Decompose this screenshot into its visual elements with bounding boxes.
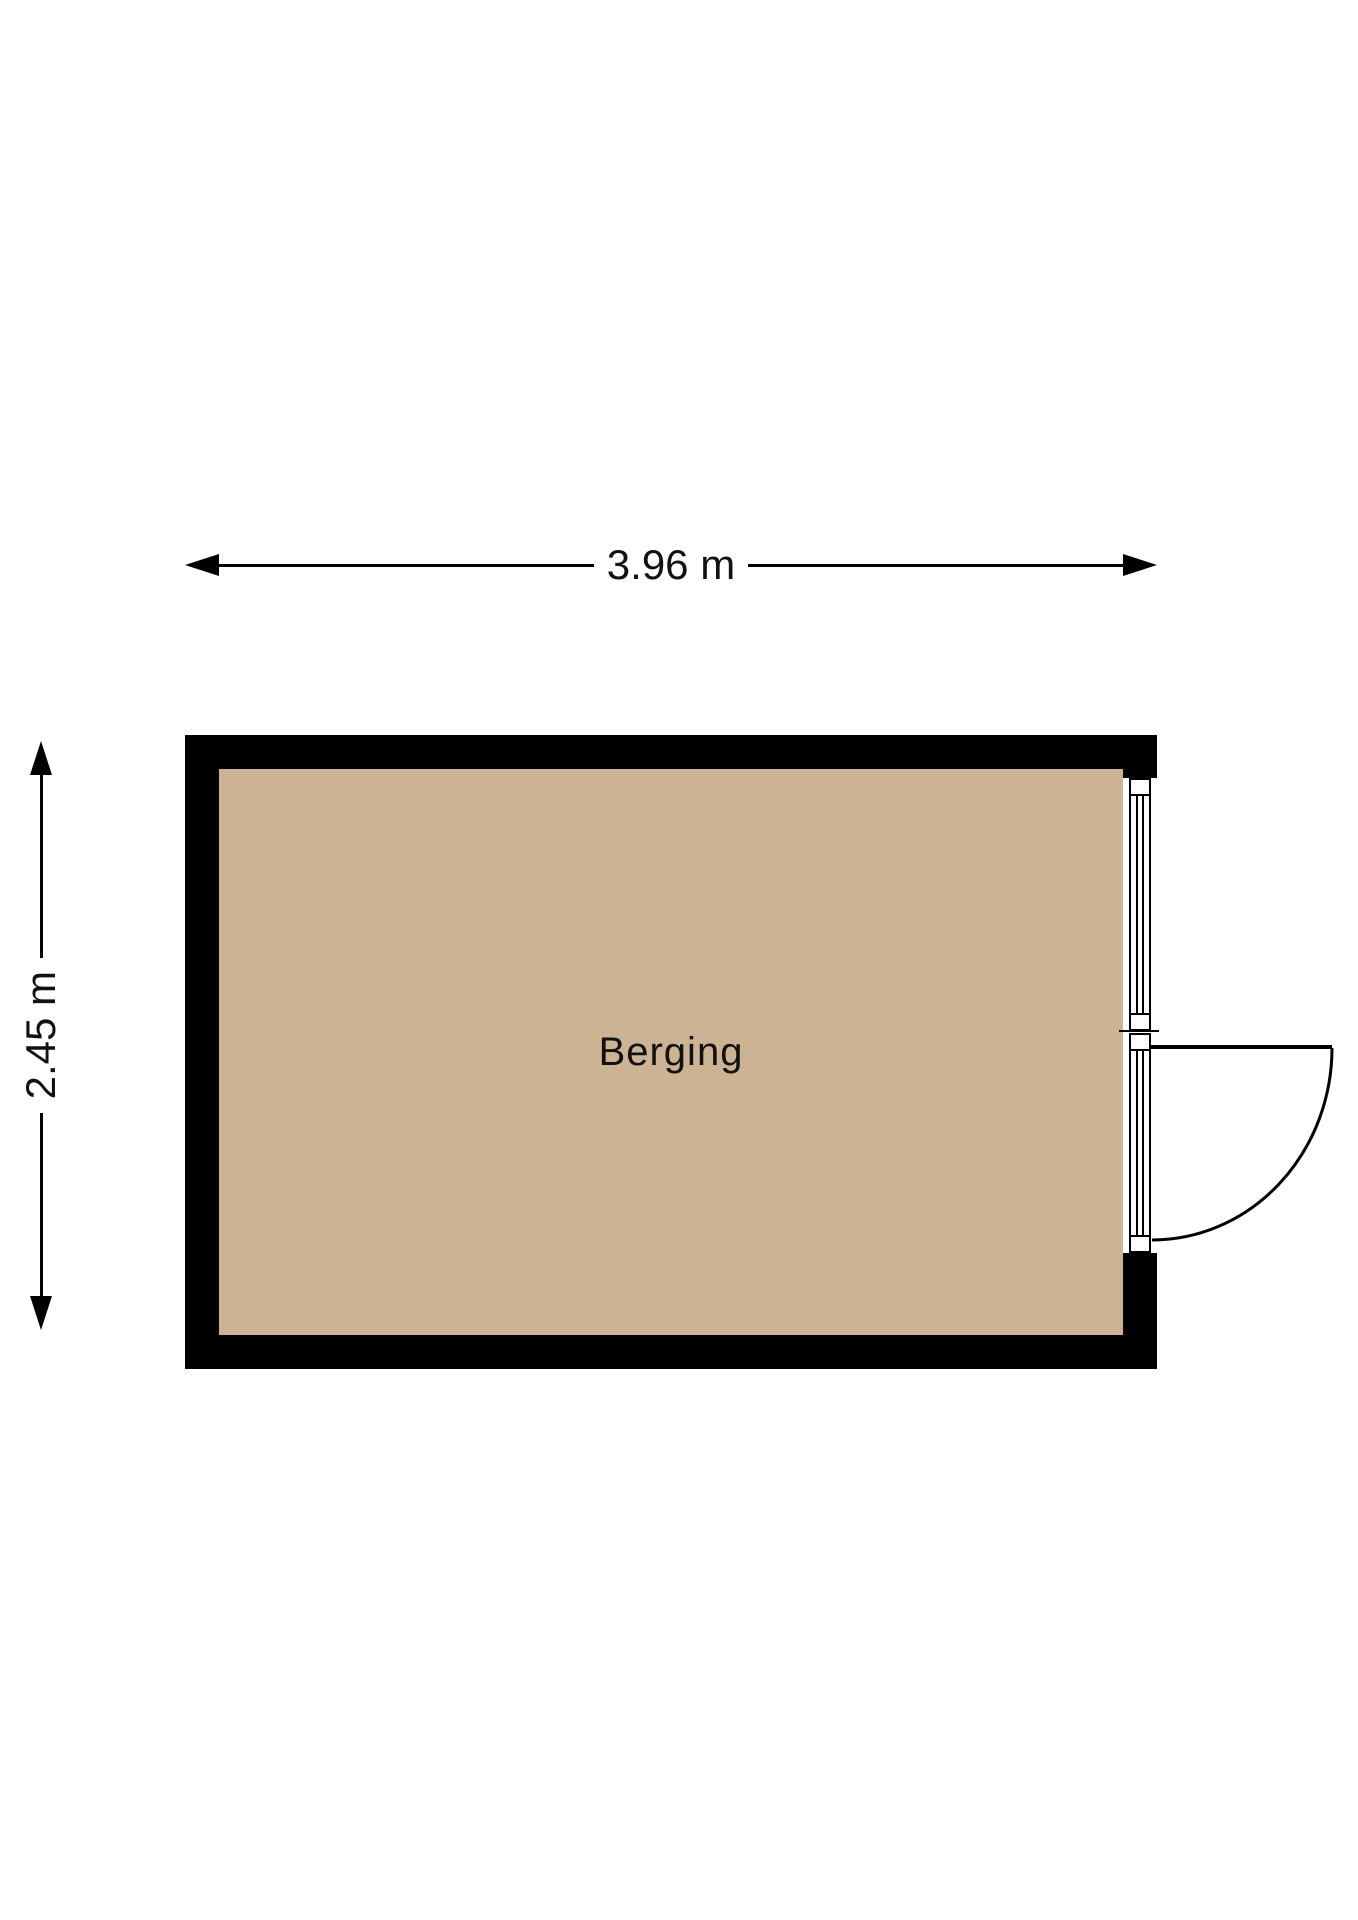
dimension-arrow-down-icon — [30, 1296, 52, 1330]
window-glazing-line — [1142, 796, 1144, 1013]
width-dimension-label: 3.96 m — [594, 544, 748, 586]
dimension-arrow-up-icon — [30, 741, 52, 775]
wall-top — [185, 735, 1157, 769]
dimension-arrow-right-icon — [1123, 554, 1157, 576]
wall-corner-top-right — [1123, 735, 1157, 778]
dimension-line-segment — [748, 564, 1123, 567]
room-name-label: Berging — [599, 1032, 744, 1072]
height-dimension-label: 2.45 m — [20, 958, 62, 1112]
room-label-layer: Berging — [219, 769, 1123, 1335]
window-frame-separator — [1131, 794, 1149, 796]
door-swing-arc — [1145, 1042, 1345, 1247]
dimension-line-segment — [219, 564, 594, 567]
height-dimension: 2.45 m — [20, 741, 62, 1330]
door-glazing-line — [1142, 1051, 1144, 1235]
wall-corner-bottom-right — [1123, 1253, 1157, 1369]
dimension-arrow-left-icon — [185, 554, 219, 576]
width-dimension: 3.96 m — [185, 544, 1157, 586]
window — [1129, 778, 1151, 1031]
window-frame-separator — [1131, 1013, 1149, 1015]
window-glazing-line — [1136, 796, 1138, 1013]
wall-bottom — [185, 1335, 1157, 1369]
door-glazing-line — [1136, 1051, 1138, 1235]
dimension-line-segment — [40, 775, 43, 958]
floor-plan-canvas: 3.96 m 2.45 m Berging — [0, 0, 1358, 1920]
dimension-line-segment — [40, 1113, 43, 1296]
mullion-tick — [1119, 1030, 1159, 1032]
wall-left — [185, 735, 219, 1369]
